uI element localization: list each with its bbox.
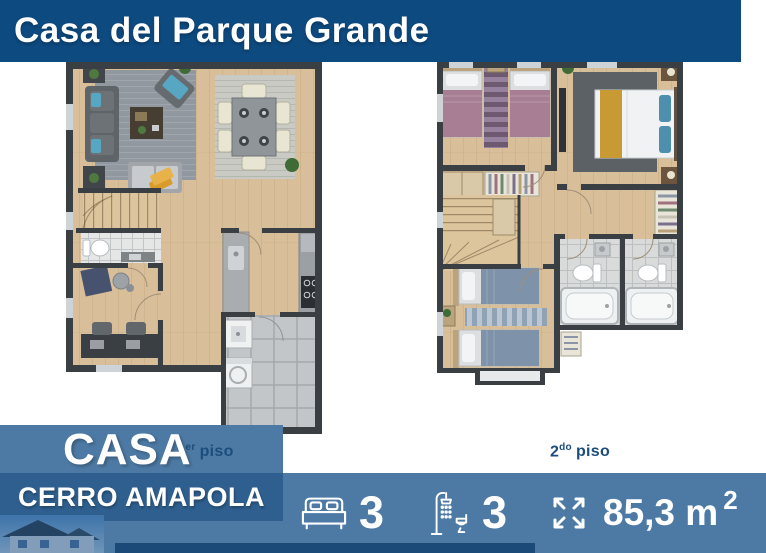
bedrooms-count: 3 <box>359 481 384 545</box>
house-photo <box>0 515 104 553</box>
bed-icon <box>301 493 347 533</box>
stairs <box>439 195 519 271</box>
bathroom <box>81 233 161 263</box>
living-room <box>83 62 196 193</box>
area-stat: 85,3 m 2 <box>549 481 738 545</box>
floorplan-first-floor <box>66 62 322 434</box>
shower-toilet-icon <box>428 490 470 536</box>
property-flyer: Casa del Parque Grande <box>0 0 766 553</box>
bedrooms-stat: 3 <box>301 481 384 545</box>
area-value: 85,3 m <box>603 481 718 545</box>
bathrooms-count: 3 <box>482 481 507 545</box>
second-floor-caption: 2dopiso <box>515 442 645 461</box>
bathrooms <box>559 239 679 327</box>
area-expand-icon <box>549 493 589 533</box>
bottom-strip <box>115 543 535 553</box>
kids-bedroom <box>442 62 550 148</box>
project-name: CERRO AMAPOLA <box>18 482 265 513</box>
bedroom-3 <box>439 268 547 368</box>
bathrooms-stat: 3 <box>428 481 507 545</box>
page-title: Casa del Parque Grande <box>14 0 430 62</box>
area-exponent: 2 <box>723 485 737 516</box>
dining-area <box>215 75 299 179</box>
caption-ordinal: do <box>559 442 572 453</box>
project-band: CERRO AMAPOLA <box>0 473 283 521</box>
floorplan-second-floor <box>437 62 683 392</box>
casa-label: CASA <box>63 425 192 473</box>
caption-word: piso <box>200 443 234 460</box>
stairs <box>83 193 159 228</box>
header-band: Casa del Parque Grande <box>0 0 741 62</box>
caption-number: 2 <box>550 443 559 460</box>
caption-word: piso <box>576 443 610 460</box>
photo-blue-overlay <box>0 515 104 553</box>
